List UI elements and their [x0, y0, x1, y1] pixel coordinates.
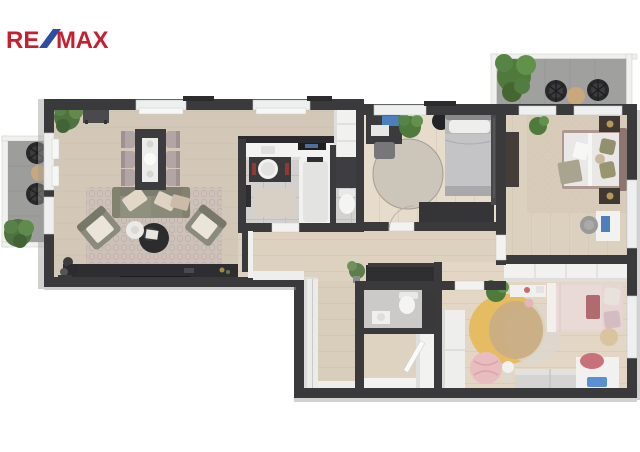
svg-text:RE: RE — [6, 27, 39, 54]
svg-text:MAX: MAX — [56, 27, 109, 54]
